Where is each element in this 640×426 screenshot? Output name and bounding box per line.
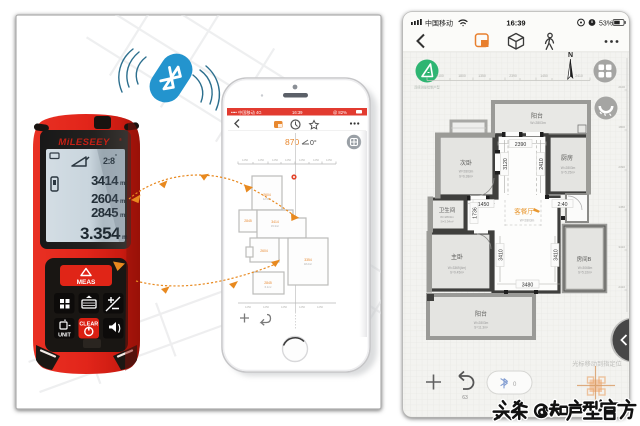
svg-text:16:39: 16:39 xyxy=(506,19,525,28)
svg-text:1250: 1250 xyxy=(263,305,269,309)
svg-text:1250: 1250 xyxy=(285,158,291,162)
svg-text:厨房: 厨房 xyxy=(561,154,573,162)
svg-text:中国移动: 中国移动 xyxy=(425,19,453,28)
svg-text:W=2803m: W=2803m xyxy=(440,215,454,219)
svg-text:1250: 1250 xyxy=(313,158,319,162)
svg-text:1800: 1800 xyxy=(618,125,625,129)
svg-text:2410: 2410 xyxy=(618,285,625,289)
svg-text:2604: 2604 xyxy=(260,249,268,253)
svg-text:2604: 2604 xyxy=(263,193,271,197)
svg-text:3480: 3480 xyxy=(522,283,534,289)
svg-text:卫生间: 卫生间 xyxy=(439,206,456,214)
svg-text:次卧: 次卧 xyxy=(460,159,472,167)
svg-text:W=2803m: W=2803m xyxy=(561,166,576,170)
svg-text:S=9.45m²: S=9.45m² xyxy=(450,271,464,275)
svg-text:1250: 1250 xyxy=(242,158,248,162)
svg-text:16:39: 16:39 xyxy=(292,110,303,115)
svg-text:S=6.38m²: S=6.38m² xyxy=(459,175,473,179)
svg-text:1800: 1800 xyxy=(458,74,466,78)
svg-text:MiLESEEY: MiLESEEY xyxy=(58,137,111,148)
svg-text:S=5.32m²: S=5.32m² xyxy=(578,271,592,275)
svg-text:UNIT: UNIT xyxy=(58,333,71,339)
svg-text:2100: 2100 xyxy=(618,85,625,89)
svg-text:主卧: 主卧 xyxy=(451,253,463,261)
svg-text:63: 63 xyxy=(462,395,468,401)
svg-text:W=2803m: W=2803m xyxy=(474,321,489,325)
svg-text:@ 82%: @ 82% xyxy=(333,110,347,115)
svg-text:W=3369(4m): W=3369(4m) xyxy=(448,266,467,270)
svg-text:N: N xyxy=(568,52,573,59)
svg-text:1250: 1250 xyxy=(272,158,278,162)
svg-text:W=2803m: W=2803m xyxy=(459,170,474,174)
svg-text:®: ® xyxy=(119,137,122,142)
svg-text:1250: 1250 xyxy=(326,158,332,162)
svg-text:S=5.25m²: S=5.25m² xyxy=(561,171,575,175)
svg-text:1250: 1250 xyxy=(299,305,305,309)
svg-text:1250: 1250 xyxy=(317,305,323,309)
svg-text:1350: 1350 xyxy=(478,74,486,78)
svg-text:15.3m²: 15.3m² xyxy=(271,224,279,228)
svg-text:MEAS: MEAS xyxy=(77,279,96,286)
svg-text:阳台: 阳台 xyxy=(531,112,543,120)
svg-text:6.1m²: 6.1m² xyxy=(265,285,272,289)
svg-text:3.354: 3.354 xyxy=(80,224,121,243)
svg-text:1250: 1250 xyxy=(281,305,287,309)
svg-text:客餐厅: 客餐厅 xyxy=(514,207,534,216)
svg-text:3410: 3410 xyxy=(499,249,505,261)
svg-text:2390: 2390 xyxy=(509,74,517,78)
svg-text:阳台: 阳台 xyxy=(475,310,487,318)
svg-text:W=2803m: W=2803m xyxy=(520,219,535,223)
svg-text:1450: 1450 xyxy=(540,74,548,78)
svg-text:18.2m²: 18.2m² xyxy=(304,262,312,266)
svg-text:2845: 2845 xyxy=(264,281,272,285)
svg-text:3120: 3120 xyxy=(503,158,509,170)
svg-text:2410: 2410 xyxy=(539,158,545,170)
svg-text:1250: 1250 xyxy=(299,158,305,162)
svg-text:870: 870 xyxy=(285,137,299,147)
svg-text:连续测量绘制户型: 连续测量绘制户型 xyxy=(414,85,440,90)
svg-text:1736: 1736 xyxy=(473,207,479,219)
svg-text:53%: 53% xyxy=(599,21,613,28)
svg-text:1250: 1250 xyxy=(245,305,251,309)
svg-text:•••• 中国移动 4G: •••• 中国移动 4G xyxy=(231,109,262,116)
svg-text:2100: 2100 xyxy=(436,74,444,78)
svg-text:S=3.34m²: S=3.34m² xyxy=(440,220,453,224)
svg-text:S=11.3m²: S=11.3m² xyxy=(474,326,488,330)
svg-text:3414: 3414 xyxy=(271,220,279,224)
svg-text:W=2803m: W=2803m xyxy=(530,121,546,125)
svg-text:2390: 2390 xyxy=(515,142,527,148)
svg-text:1450: 1450 xyxy=(618,205,625,209)
svg-text:光标移动到指定位: 光标移动到指定位 xyxy=(572,360,622,368)
svg-text:3410: 3410 xyxy=(618,245,625,249)
svg-text:3410: 3410 xyxy=(554,249,560,261)
svg-text:房间B: 房间B xyxy=(577,255,592,263)
svg-text:2390: 2390 xyxy=(618,165,625,169)
svg-text:1250: 1250 xyxy=(258,158,264,162)
svg-text:W=3068m: W=3068m xyxy=(578,266,593,270)
svg-text:3354: 3354 xyxy=(304,258,312,262)
svg-text:2845: 2845 xyxy=(244,219,252,223)
svg-text:2:40: 2:40 xyxy=(557,202,567,208)
svg-text:1450: 1450 xyxy=(478,202,490,208)
svg-text:0°: 0° xyxy=(310,139,317,147)
svg-text:2410: 2410 xyxy=(575,74,583,78)
